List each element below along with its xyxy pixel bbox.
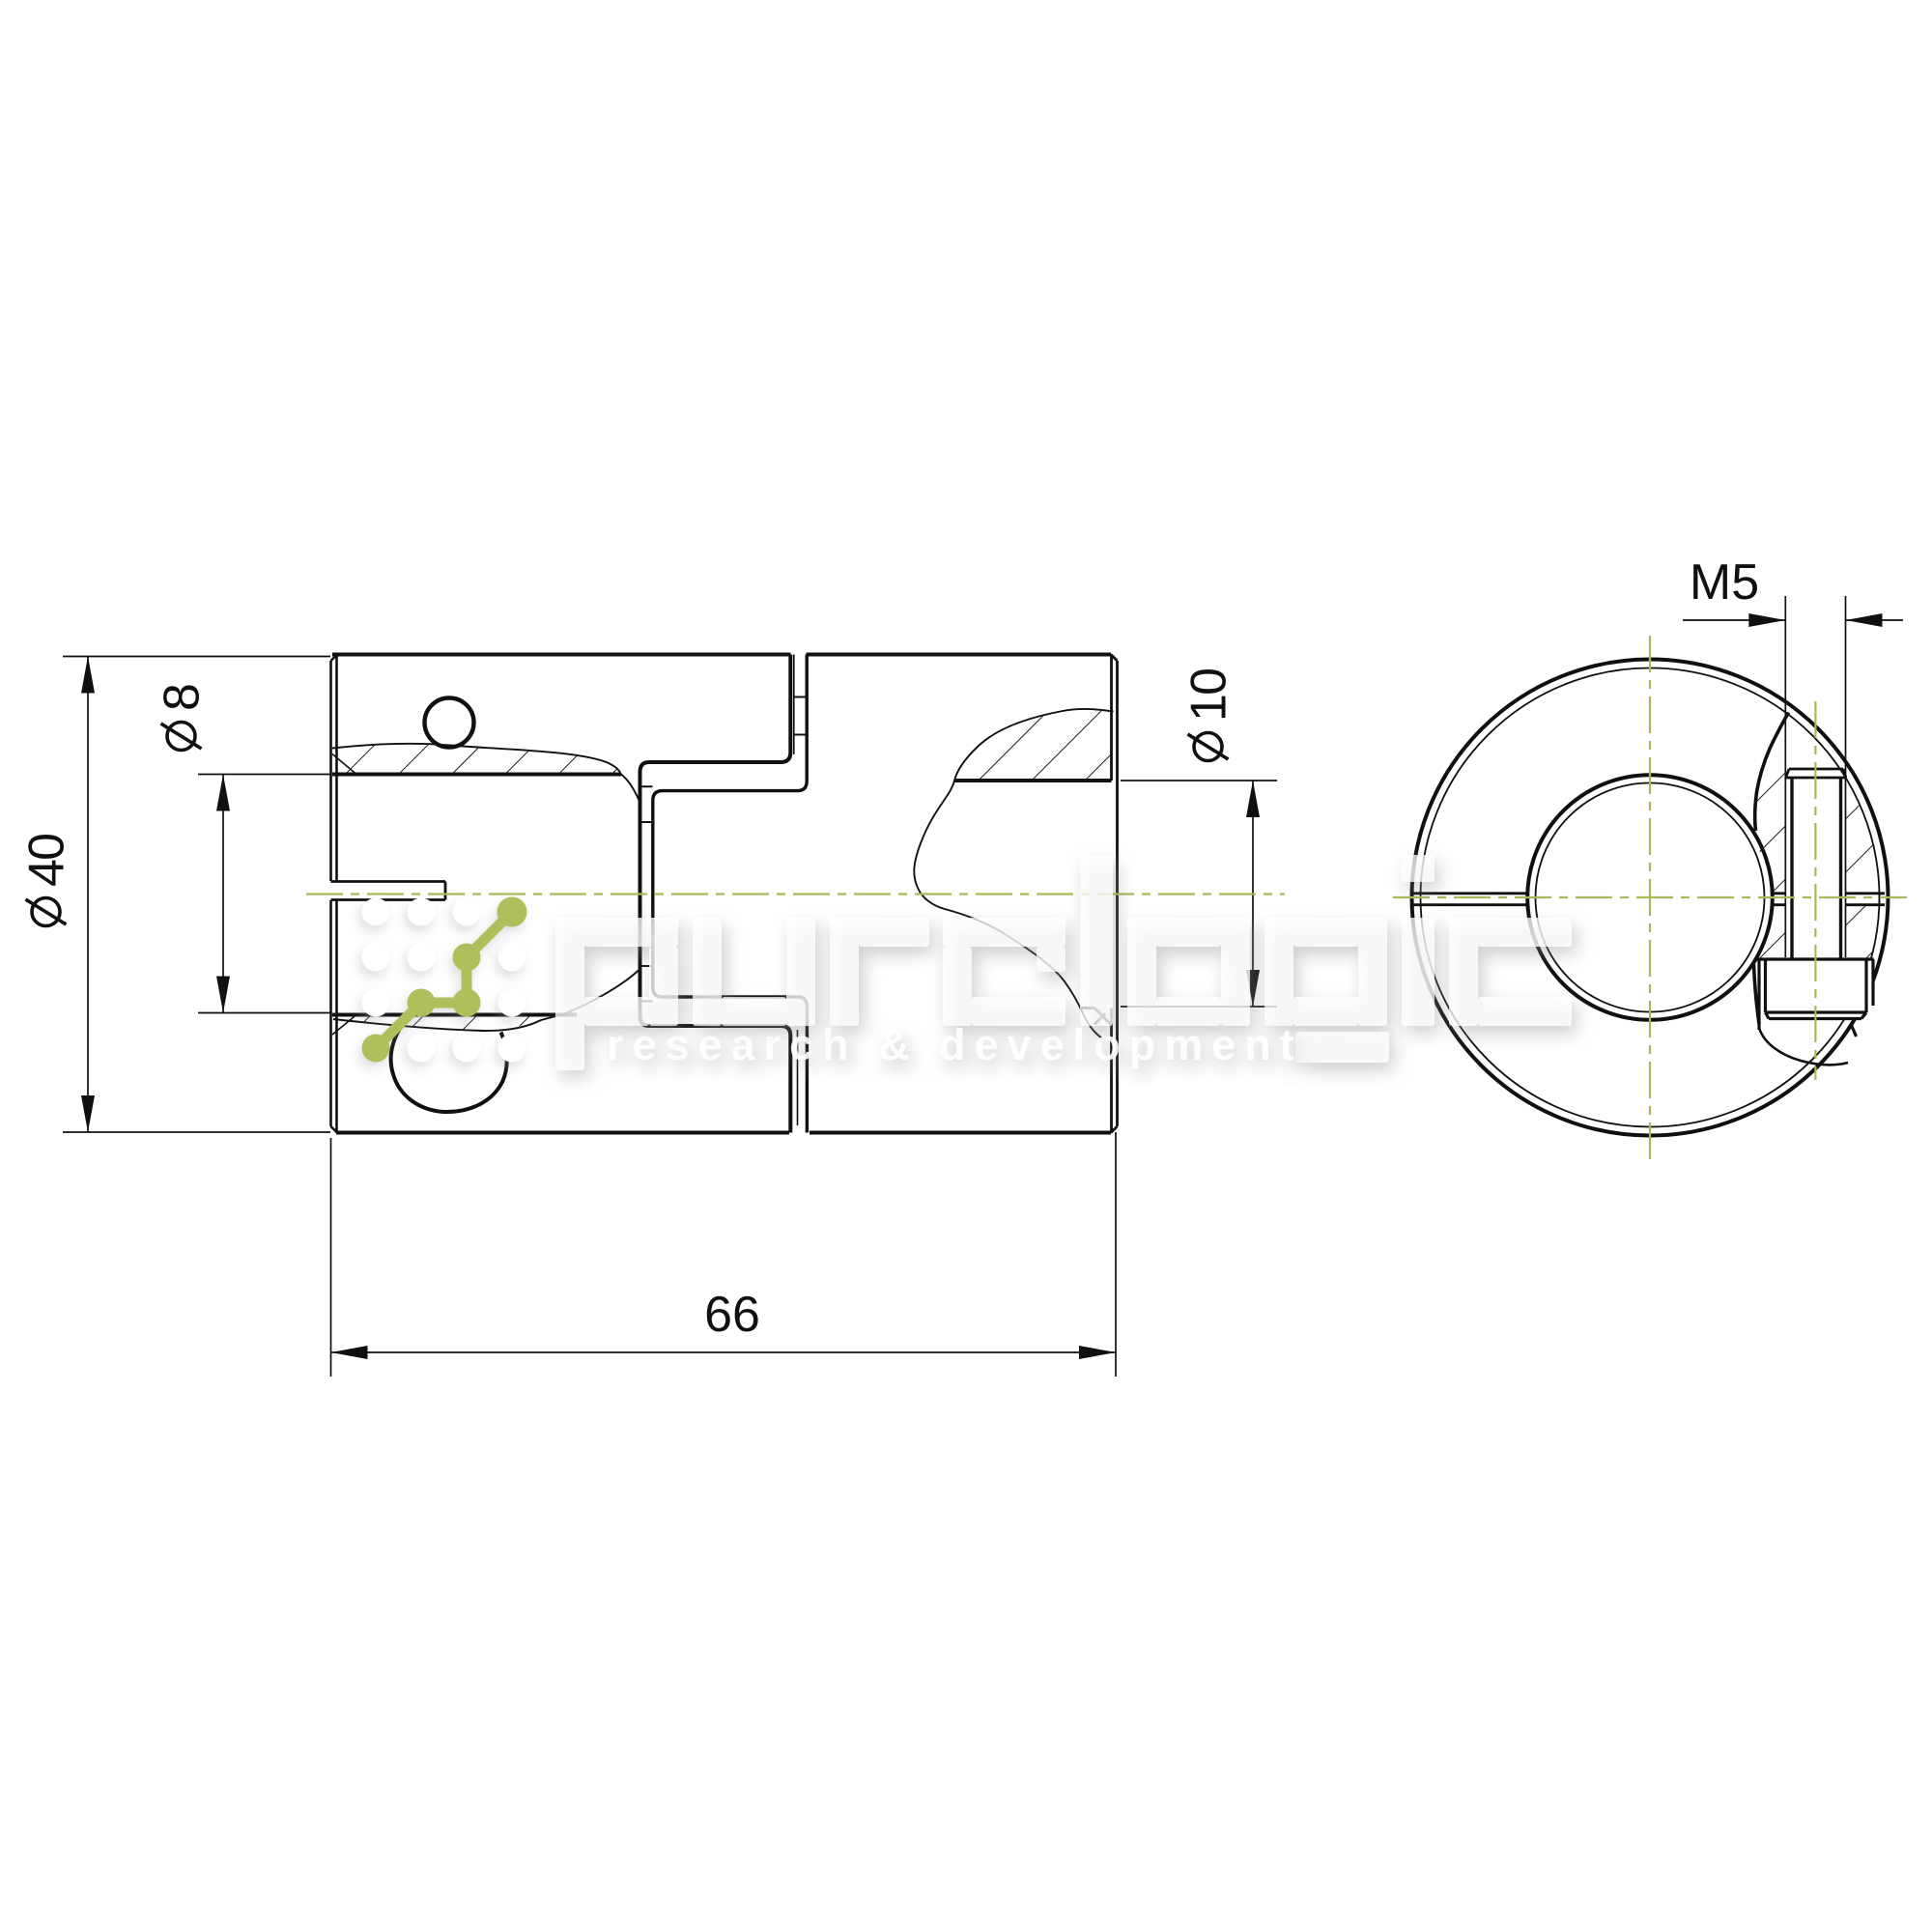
svg-text:research & development: research & development bbox=[607, 1020, 1303, 1069]
svg-text:8: 8 bbox=[155, 683, 211, 711]
svg-text:M5: M5 bbox=[1690, 554, 1759, 611]
svg-text:40: 40 bbox=[19, 833, 75, 887]
svg-text:66: 66 bbox=[704, 1287, 760, 1343]
svg-text:10: 10 bbox=[1181, 668, 1237, 722]
